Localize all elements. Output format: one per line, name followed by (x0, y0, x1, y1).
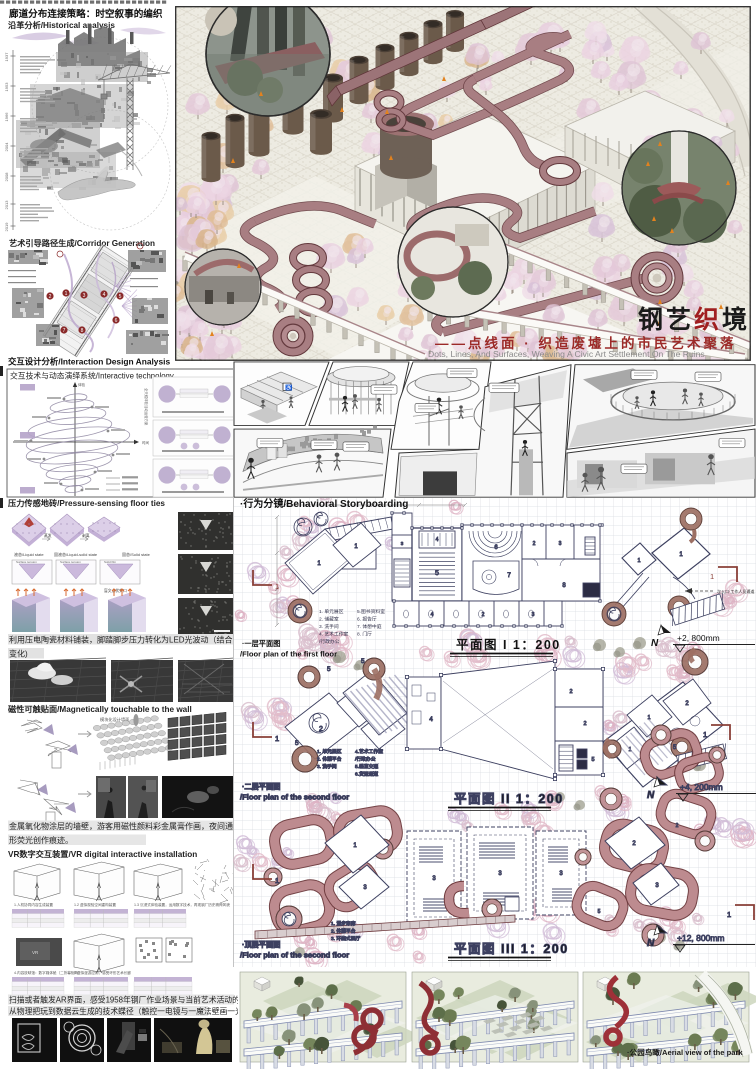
svg-text:·顶层平面图: ·顶层平面图 (242, 940, 280, 949)
svg-text:利用压电陶瓷材料铺装，脚踏脚步压力转化为LED光波动（结合罗: 利用压电陶瓷材料铺装，脚踏脚步压力转化为LED光波动（结合罗斯科(色域绘画 (9, 635, 238, 645)
svg-text:♿: ♿ (285, 384, 292, 392)
svg-text:1: 1 (727, 910, 731, 919)
svg-text:5: 5 (327, 666, 331, 673)
svg-text:7: 7 (63, 328, 66, 334)
svg-text:/Floor plan of the first floor: /Floor plan of the first floor (240, 650, 337, 659)
svg-text:1: 1 (275, 876, 279, 885)
svg-text:1.2 虚拟观验空间重构装置: 1.2 虚拟观验空间重构装置 (74, 902, 116, 907)
svg-text:金属氧化物涂层的墙壁，游客用磁性颜料彩金属膏作画，夜间通过紫: 金属氧化物涂层的墙壁，游客用磁性颜料彩金属膏作画，夜间通过紫外线形成显 (9, 821, 238, 831)
svg-text:·行为分镜/Behavioral Storyboarding: ·行为分镜/Behavioral Storyboarding (240, 497, 408, 510)
svg-text:Solid film: Solid film (104, 560, 117, 564)
svg-text:全天候体验活动运营方案: 全天候体验活动运营方案 (144, 388, 149, 426)
svg-text:1: 1 (637, 558, 640, 564)
svg-text:4: 4 (436, 537, 439, 543)
svg-text:5: 5 (361, 658, 365, 665)
svg-text:+2, 800mm: +2, 800mm (677, 633, 720, 643)
svg-text:1. 单元展区: 1. 单元展区 (317, 748, 342, 755)
svg-text:2: 2 (569, 689, 572, 695)
svg-text:/Floor plan of the second floo: /Floor plan of the second floor (240, 951, 349, 960)
svg-text:4: 4 (431, 612, 434, 618)
svg-text:2004: 2004 (4, 142, 9, 152)
svg-text:2: 2 (482, 612, 485, 618)
svg-text:·一层平面图: ·一层平面图 (242, 639, 280, 648)
svg-text:磁性可触贴面/Magnetically touchable: 磁性可触贴面/Magnetically touchable to the wal… (8, 704, 192, 714)
svg-text:钢艺织境: 钢艺织境 (638, 305, 750, 334)
svg-text:1953: 1953 (4, 82, 9, 92)
svg-text:变化): 变化) (9, 649, 28, 659)
svg-text:艺术引导路径生成/Corridor Generation: 艺术引导路径生成/Corridor Generation (9, 238, 155, 248)
svg-text:6: 6 (115, 318, 118, 324)
svg-text:5: 5 (295, 740, 299, 747)
svg-text:4.内容放映馆：数字媒体舱（二折幕矩阵）: 4.内容放映馆：数字媒体舱（二折幕矩阵） (14, 970, 82, 975)
svg-text:5: 5 (598, 909, 601, 915)
svg-text:/Floor plan of the second floo: /Floor plan of the second floor (240, 793, 349, 802)
svg-text:Dots, Lines, And Surfaces, Wea: Dots, Lines, And Surfaces, Weaving A Civ… (428, 349, 705, 359)
svg-text:从物理把玩到数据云生成的技术蝶径（触控一电镜与一魔法壁画一光: 从物理把玩到数据云生成的技术蝶径（触控一电镜与一魔法壁画一光影投射）。 (9, 1006, 238, 1016)
svg-text:·二层平面图: ·二层平面图 (242, 782, 280, 791)
svg-text:1.3 沉浸式体验装置，运用数字技术，再现钢厂历史精神风貌: 1.3 沉浸式体验装置，运用数字技术，再现钢厂历史精神风貌 (134, 902, 230, 907)
svg-text:5: 5 (591, 757, 594, 763)
svg-text:2013: 2013 (4, 200, 9, 210)
svg-text:5.虚拟漫游应用，感受环形艺术长廊: 5.虚拟漫游应用，感受环形艺术长廊 (74, 970, 131, 975)
svg-text:5: 5 (119, 294, 122, 300)
svg-text:VR数字交互装置/VR digital interactiv: VR数字交互装置/VR digital interactive installa… (8, 849, 197, 859)
svg-text:交互设计分析/Interaction Design Anal: 交互设计分析/Interaction Design Analysis (8, 357, 170, 367)
svg-text:2: 2 (583, 721, 586, 727)
svg-text:1: 1 (275, 582, 279, 591)
svg-text:压力传感地砖/Pressure-sensing floor: 压力传感地砖/Pressure-sensing floor ties (8, 498, 165, 508)
svg-text:2. 体憩平台: 2. 体憩平台 (331, 928, 356, 935)
svg-text:2. 储藏室: 2. 储藏室 (319, 616, 339, 623)
svg-text:1: 1 (703, 730, 707, 739)
svg-text:3. 洗手间: 3. 洗手间 (319, 623, 339, 630)
svg-text:+4, 200mm: +4, 200mm (680, 782, 723, 792)
svg-text:7. 体憩中庭: 7. 体憩中庭 (357, 623, 382, 630)
svg-text:4. 艺术工作室: 4. 艺术工作室 (319, 631, 349, 638)
svg-text:7: 7 (507, 572, 511, 579)
svg-text:8. 门厅: 8. 门厅 (357, 631, 372, 638)
svg-text:3. 环绕式展厅: 3. 环绕式展厅 (331, 935, 361, 942)
svg-text:6.货运通道: 6.货运通道 (355, 771, 378, 778)
svg-text:3: 3 (559, 541, 562, 547)
svg-text:5.垂直交通: 5.垂直交通 (355, 763, 378, 770)
svg-text:1937: 1937 (4, 52, 9, 62)
svg-text:平面图 II 1：200: 平面图 II 1：200 (454, 792, 564, 806)
svg-text:2008: 2008 (4, 172, 9, 182)
svg-text:1. 单元展区: 1. 单元展区 (319, 608, 344, 615)
svg-text:4: 4 (103, 292, 106, 298)
svg-text:2019: 2019 (4, 222, 9, 232)
svg-text:/行政办公: /行政办公 (355, 756, 376, 763)
svg-text:5.图书资料室: 5.图书资料室 (357, 608, 385, 615)
svg-text:形荧光创作痕迹。: 形荧光创作痕迹。 (9, 835, 73, 845)
svg-text:2: 2 (533, 541, 536, 547)
svg-text:体验: 体验 (78, 382, 85, 387)
svg-text:6. 报告厅: 6. 报告厅 (357, 616, 377, 623)
svg-text:Surface tension: Surface tension (16, 560, 37, 564)
svg-text:1: 1 (710, 572, 714, 581)
svg-text:4: 4 (429, 716, 433, 723)
svg-text:扫描或者触发AR界面，感受1958年钢厂作业场景与当前艺术活: 扫描或者触发AR界面，感受1958年钢厂作业场景与当前艺术活动的时空融合。 (9, 995, 238, 1005)
svg-text:次入口·工作人员通道: 次入口·工作人员通道 (717, 588, 754, 594)
svg-text:1: 1 (275, 734, 279, 743)
svg-text:2. 休憩平台: 2. 休憩平台 (317, 756, 342, 763)
svg-text:1: 1 (65, 291, 68, 297)
svg-text:时间: 时间 (142, 440, 149, 445)
svg-text:2: 2 (49, 294, 52, 300)
svg-text:4.艺术工作室: 4.艺术工作室 (355, 748, 383, 755)
svg-text:交互技术与动态演绎系统/Interactive techno: 交互技术与动态演绎系统/Interactive technology (10, 371, 174, 381)
svg-text:3: 3 (83, 293, 86, 299)
svg-text:N: N (647, 790, 655, 801)
svg-text:廊道分布连接策略：时空叙事的编织: 廊道分布连接策略：时空叙事的编织 (9, 8, 163, 20)
svg-text:固态/Solid state: 固态/Solid state (122, 551, 151, 557)
svg-text:N: N (651, 638, 659, 649)
svg-text:3: 3 (532, 612, 535, 618)
svg-text:Surface tension: Surface tension (60, 560, 81, 564)
svg-text:平面图 III 1：200: 平面图 III 1：200 (454, 942, 569, 956)
svg-text:5: 5 (435, 570, 439, 577)
svg-text:固液态/Liquid-solid state: 固液态/Liquid-solid state (54, 551, 98, 557)
svg-text:N: N (647, 938, 655, 949)
svg-text:液态/Liquid state: 液态/Liquid state (14, 551, 44, 557)
svg-text:/行政办公: /行政办公 (319, 638, 340, 645)
svg-text:平面图 I 1：200: 平面图 I 1：200 (456, 638, 561, 652)
svg-text:8: 8 (81, 328, 84, 334)
svg-text:1966: 1966 (4, 112, 9, 122)
svg-text:2: 2 (676, 823, 679, 829)
svg-text:·公园鸟瞰/Aerial view of the park: ·公园鸟瞰/Aerial view of the park (627, 1047, 743, 1057)
svg-text:1.人机协同内容生成装置: 1.人机协同内容生成装置 (14, 902, 53, 907)
svg-text:+12, 800mm: +12, 800mm (677, 933, 725, 943)
svg-text:VR: VR (32, 950, 39, 955)
svg-text:3. 洗手间: 3. 洗手间 (317, 763, 337, 770)
svg-text:1. 漫步穿廊: 1. 漫步穿廊 (331, 920, 356, 927)
